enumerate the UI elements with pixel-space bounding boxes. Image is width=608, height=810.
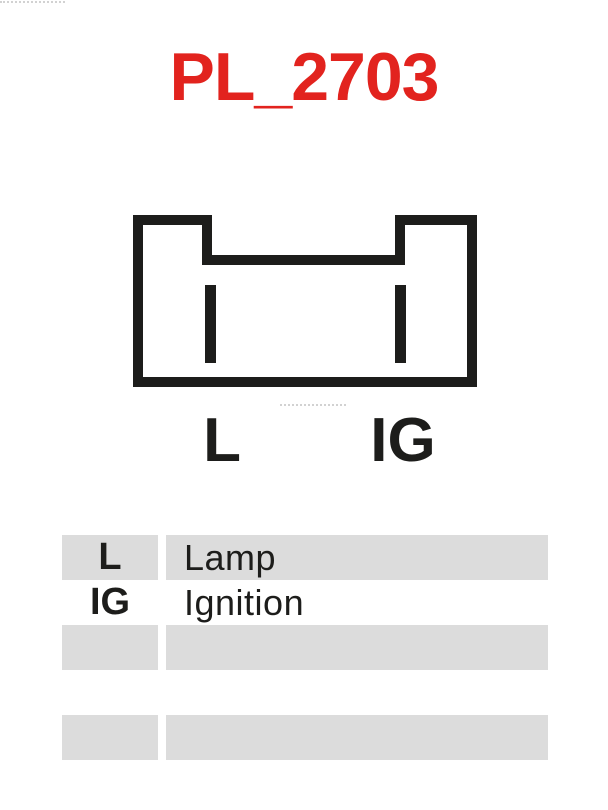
- legend-row: L Lamp: [62, 535, 548, 580]
- legend-description-cell: Ignition: [166, 580, 548, 625]
- connector-pinout-page: PL_2703 L IG L Lamp IG Ignition: [0, 0, 608, 810]
- legend-pin-cell: [62, 715, 158, 760]
- legend-description-cell: [166, 715, 548, 760]
- legend-row: [62, 625, 548, 670]
- legend-description-cell: [166, 625, 548, 670]
- pin-mark-left: [205, 285, 216, 363]
- pin-label-l: L: [190, 410, 254, 472]
- pin-legend-table: L Lamp IG Ignition: [62, 535, 548, 760]
- pin-label-ig: IG: [361, 410, 445, 472]
- watermark-dots-middle: [280, 404, 346, 406]
- legend-row: [62, 715, 548, 760]
- watermark-dots-top: [0, 1, 65, 3]
- connector-outline-drawing: [128, 210, 482, 398]
- legend-row: [62, 670, 548, 715]
- legend-pin-cell: IG: [62, 580, 158, 625]
- pin-mark-right: [395, 285, 406, 363]
- page-title: PL_2703: [0, 40, 608, 115]
- legend-description-cell: Lamp: [166, 535, 548, 580]
- legend-description-cell: [166, 670, 548, 715]
- legend-row: IG Ignition: [62, 580, 548, 625]
- connector-body-outline: [138, 220, 472, 382]
- legend-pin-cell: [62, 625, 158, 670]
- legend-pin-cell: L: [62, 535, 158, 580]
- legend-pin-cell: [62, 670, 158, 715]
